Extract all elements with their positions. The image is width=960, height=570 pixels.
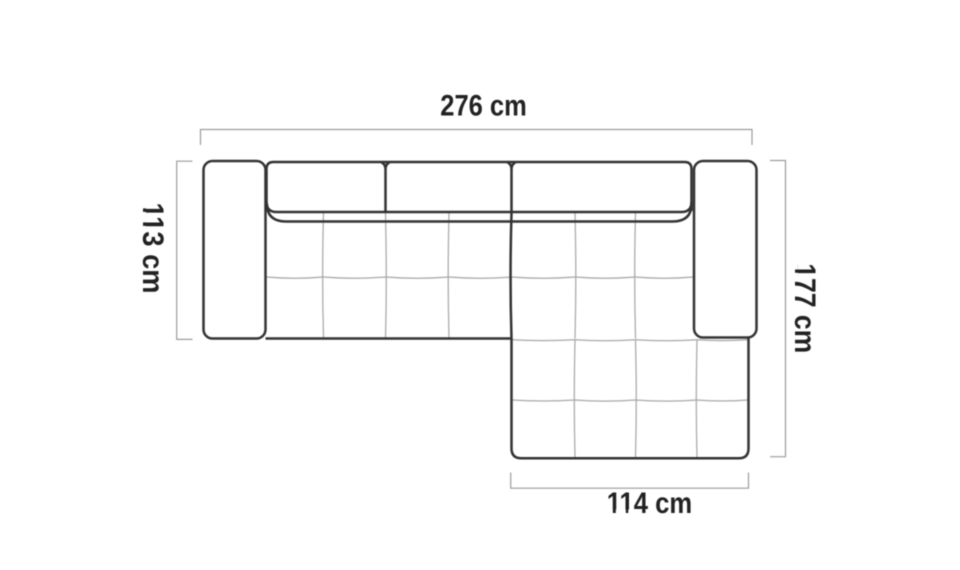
svg-text:114 cm: 114 cm: [607, 487, 693, 520]
svg-text:177 cm: 177 cm: [788, 263, 821, 353]
svg-text:113 cm: 113 cm: [136, 203, 169, 294]
svg-text:276 cm: 276 cm: [440, 90, 527, 123]
